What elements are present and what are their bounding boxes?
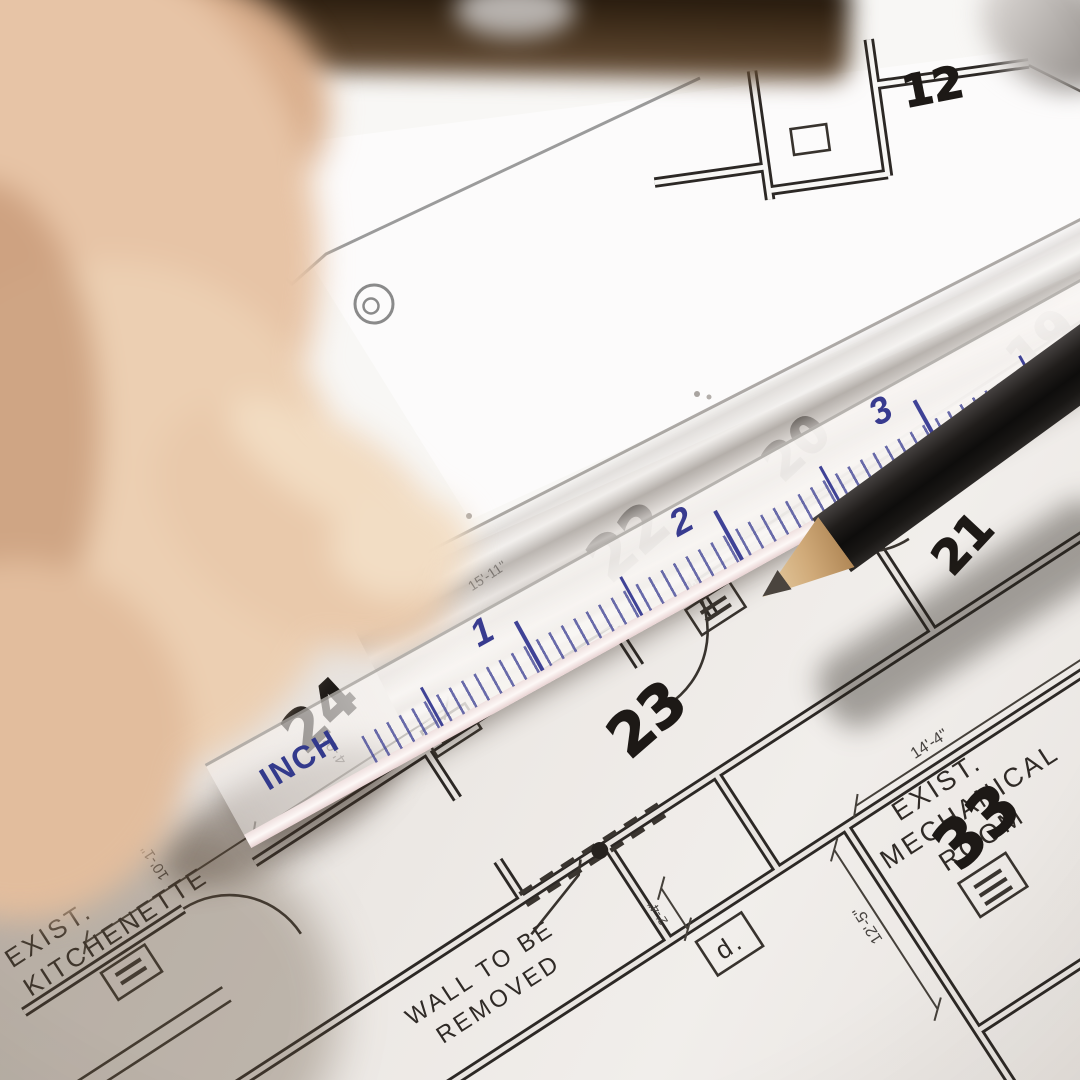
dim-text: 12'-5": [850, 903, 886, 946]
counter-lines: [71, 987, 231, 1080]
paper-speck: [466, 513, 472, 519]
wall-vestibule: [607, 774, 779, 941]
paper-speck: [694, 391, 700, 397]
ruler-number: 2: [662, 498, 700, 545]
paper-speck: [707, 395, 712, 400]
handwritten-23: 23: [594, 667, 700, 771]
dim-text: 4'-11": [41, 840, 73, 878]
ruler-number: 1: [463, 609, 501, 656]
dim-text: 10'-1": [138, 842, 173, 883]
handwritten-21: 21: [921, 501, 1004, 585]
ruler-number: 3: [861, 388, 899, 435]
wall-core: [427, 751, 523, 899]
wall-core: [607, 774, 779, 941]
photo-drafting-scene: EXIST. MECHANICAL ROOM EXIST. KITCHENETT…: [0, 0, 1080, 1080]
